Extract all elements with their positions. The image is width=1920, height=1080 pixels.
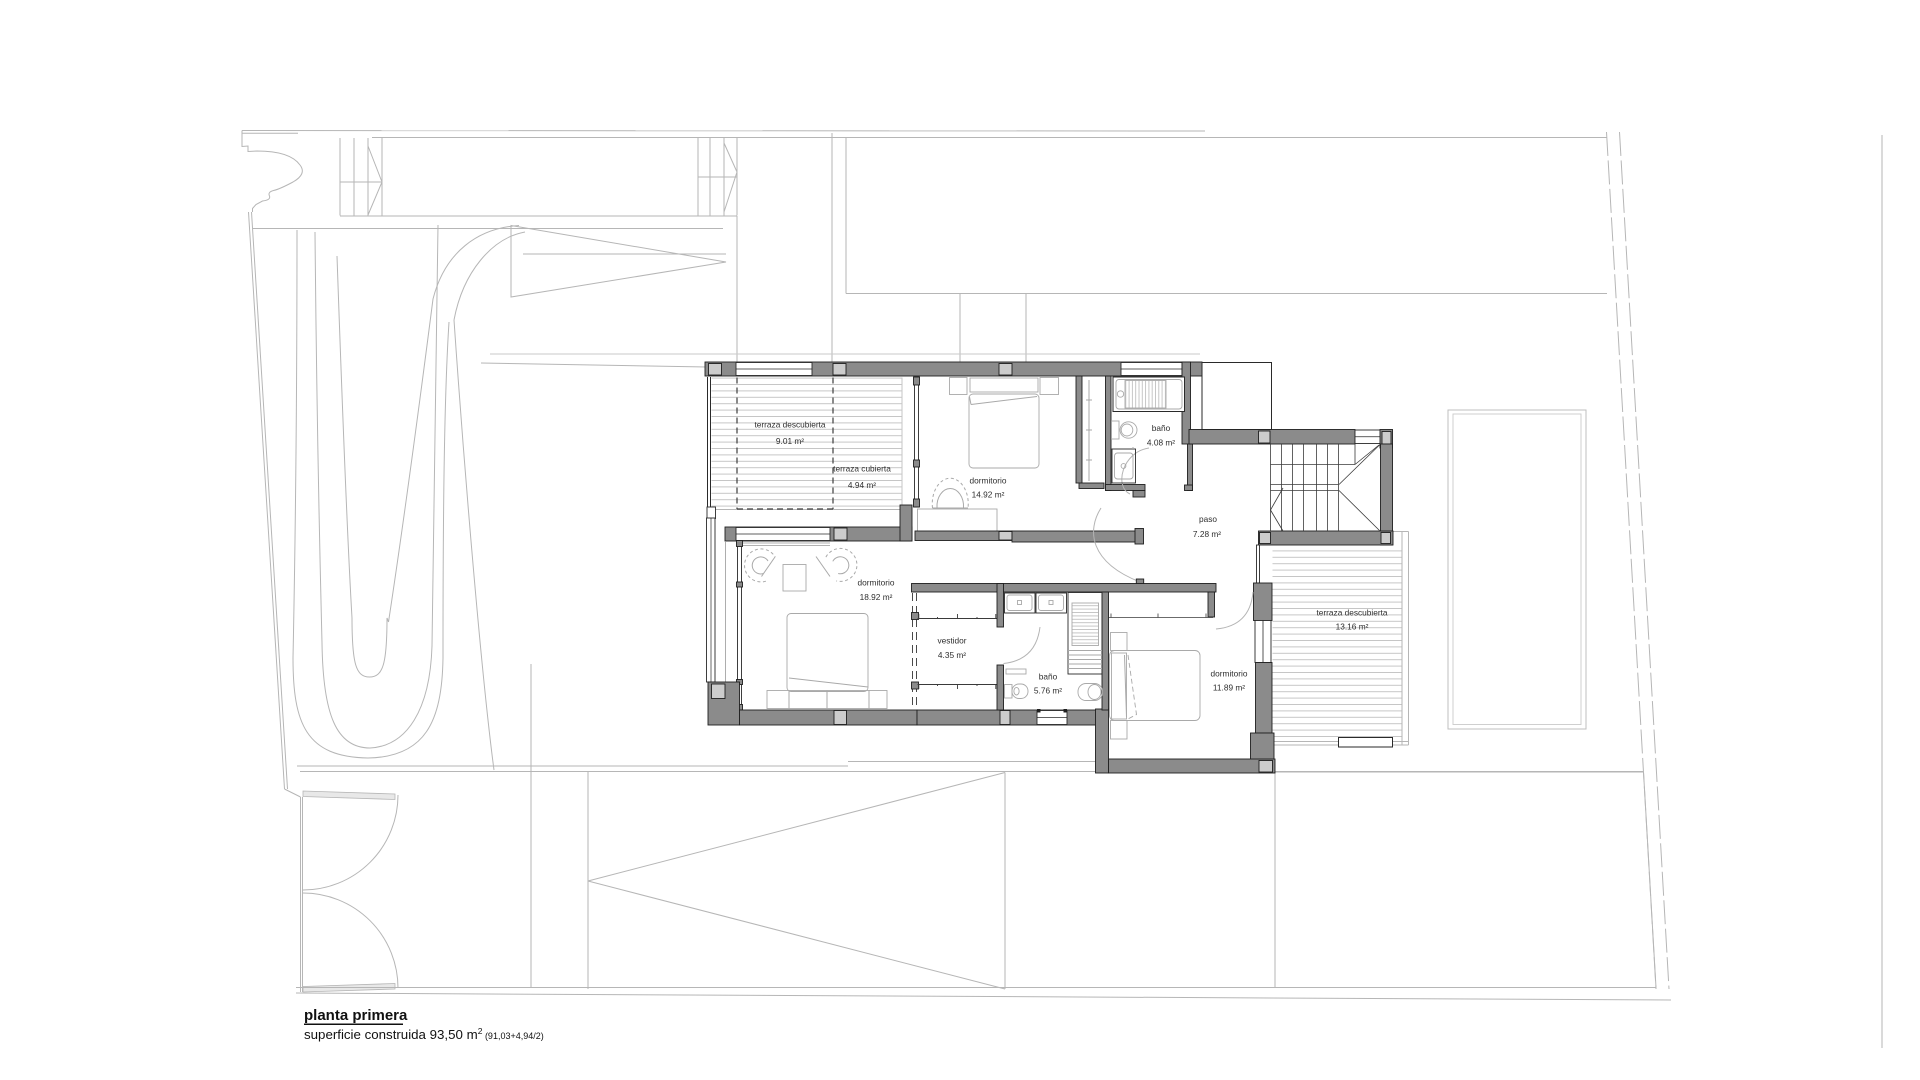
svg-text:vestidor: vestidor [937,636,966,646]
svg-text:dormitorio: dormitorio [1211,669,1248,679]
svg-text:terraza descubierta: terraza descubierta [1316,608,1387,618]
svg-text:7.28 m²: 7.28 m² [1193,529,1221,539]
svg-text:dormitorio: dormitorio [858,578,895,588]
svg-text:paso: paso [1199,514,1217,524]
svg-text:dormitorio: dormitorio [970,476,1007,486]
svg-text:11.89 m²: 11.89 m² [1213,683,1245,693]
svg-text:9.01 m²: 9.01 m² [776,436,804,446]
svg-text:18.92 m²: 18.92 m² [860,592,893,602]
svg-text:14.92 m²: 14.92 m² [972,490,1005,500]
svg-text:planta primera: planta primera [304,1007,408,1024]
svg-text:4.35 m²: 4.35 m² [938,650,966,660]
svg-text:baño: baño [1039,672,1058,682]
svg-text:4.94 m²: 4.94 m² [848,480,876,490]
svg-text:baño: baño [1152,423,1171,433]
svg-text:13.16 m²: 13.16 m² [1336,622,1369,632]
svg-text:5.76 m²: 5.76 m² [1034,686,1062,696]
svg-text:terraza cubierta: terraza cubierta [833,464,891,474]
svg-text:4.08 m²: 4.08 m² [1147,438,1175,448]
svg-text:terraza descubierta: terraza descubierta [754,420,825,430]
